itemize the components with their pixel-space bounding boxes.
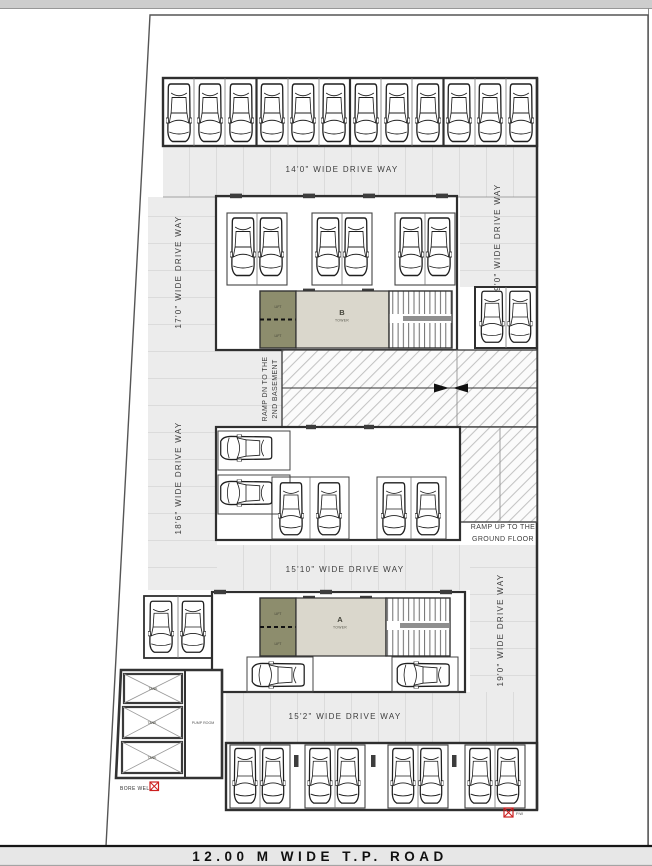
- basement-floor-plan-sheet: LIFT LIFT B TOWER RAMP DN TO THE 2ND BAS…: [0, 0, 652, 866]
- driveway-right-lower-label: 19'0" WIDE DRIVE WAY: [496, 573, 505, 686]
- pw-label: P.W: [516, 811, 523, 816]
- driveway-left-lower-label: 18'6" WIDE DRIVE WAY: [174, 421, 183, 534]
- lift-b1-label: LIFT: [275, 305, 282, 309]
- parked-car: [381, 483, 407, 535]
- tank-3: TANK: [122, 742, 182, 773]
- tower-b-sub: TOWER: [335, 319, 349, 323]
- road-label: 12.00 M WIDE T.P. ROAD: [192, 849, 448, 864]
- parked-car: [148, 601, 174, 652]
- parked-car: [261, 748, 286, 803]
- ramp-up-label-1: RAMP UP TO THE: [471, 524, 535, 531]
- parked-car: [221, 435, 272, 462]
- parked-car: [290, 84, 316, 142]
- lift-a2-label: LIFT: [275, 642, 282, 646]
- parked-car: [321, 84, 347, 142]
- parked-car: [477, 84, 503, 142]
- parked-car: [353, 84, 379, 142]
- ramp-down-label-2: 2ND BASEMENT: [272, 359, 279, 419]
- parked-car: [233, 748, 258, 803]
- page-top-strip: [0, 0, 652, 8]
- parked-car: [496, 748, 521, 803]
- tank-1-label: TANK: [149, 687, 159, 691]
- tank-2-label: TANK: [148, 721, 158, 725]
- parked-car: [278, 483, 304, 535]
- parked-car: [415, 483, 441, 535]
- pump-room-label: PUMP ROOM: [192, 721, 215, 725]
- stair-a: [386, 598, 450, 656]
- stair-b: [389, 291, 452, 348]
- driveway-middle-label: 15'10" WIDE DRIVE WAY: [286, 565, 405, 574]
- tower-b-core: LIFT LIFT B TOWER: [260, 291, 452, 348]
- tank-2: TANK: [123, 707, 182, 738]
- parked-car: [419, 748, 444, 803]
- parked-car: [230, 218, 256, 276]
- parked-car: [391, 748, 416, 803]
- parked-car: [197, 84, 223, 142]
- parked-car: [426, 218, 452, 276]
- tank-3-label: TANK: [148, 756, 158, 760]
- tank-1: TANK: [124, 674, 182, 703]
- parked-car: [398, 218, 424, 276]
- parked-car: [221, 480, 272, 507]
- parked-car: [446, 84, 472, 142]
- parked-car: [258, 218, 284, 276]
- parked-car: [508, 84, 534, 142]
- driveway-right-upper-label: 19'0" WIDE DRIVE WAY: [493, 183, 502, 296]
- parked-car: [316, 483, 342, 535]
- ramp-up-label-2: GROUND FLOOR: [472, 536, 534, 543]
- bore-well-label: BORE WELL: [120, 786, 153, 792]
- parked-car: [166, 84, 192, 142]
- pump-tank-enclosure: TANK TANK TANK PUMP ROOM: [116, 670, 222, 778]
- parked-car: [228, 84, 254, 142]
- driveway-top-label: 14'0" WIDE DRIVE WAY: [285, 165, 398, 174]
- parked-car: [336, 748, 361, 803]
- parked-car: [259, 84, 285, 142]
- parked-car: [480, 291, 505, 342]
- parked-car: [397, 662, 449, 689]
- driveway-left-upper-label: 17'0" WIDE DRIVE WAY: [174, 215, 183, 328]
- tower-a-letter: A: [337, 615, 343, 624]
- floor-plan-drawing: LIFT LIFT B TOWER RAMP DN TO THE 2ND BAS…: [0, 0, 652, 866]
- parked-car: [180, 601, 206, 652]
- driveway-bottom-label: 15'2" WIDE DRIVE WAY: [288, 712, 401, 721]
- lift-b2-label: LIFT: [275, 334, 282, 338]
- lift-a1-label: LIFT: [275, 612, 282, 616]
- tower-a-core: LIFT LIFT A TOWER: [260, 598, 450, 656]
- tower-b-letter: B: [339, 308, 345, 317]
- parked-car: [315, 218, 341, 276]
- parked-car: [308, 748, 333, 803]
- tower-a-sub: TOWER: [333, 626, 347, 630]
- parked-car: [508, 291, 533, 342]
- parked-car: [468, 748, 493, 803]
- parked-car: [343, 218, 369, 276]
- parked-car: [384, 84, 410, 142]
- road-band: 12.00 M WIDE T.P. ROAD: [0, 846, 652, 866]
- ramp-down-label-1: RAMP DN TO THE: [262, 357, 269, 422]
- parked-car: [252, 662, 304, 689]
- parked-car: [415, 84, 441, 142]
